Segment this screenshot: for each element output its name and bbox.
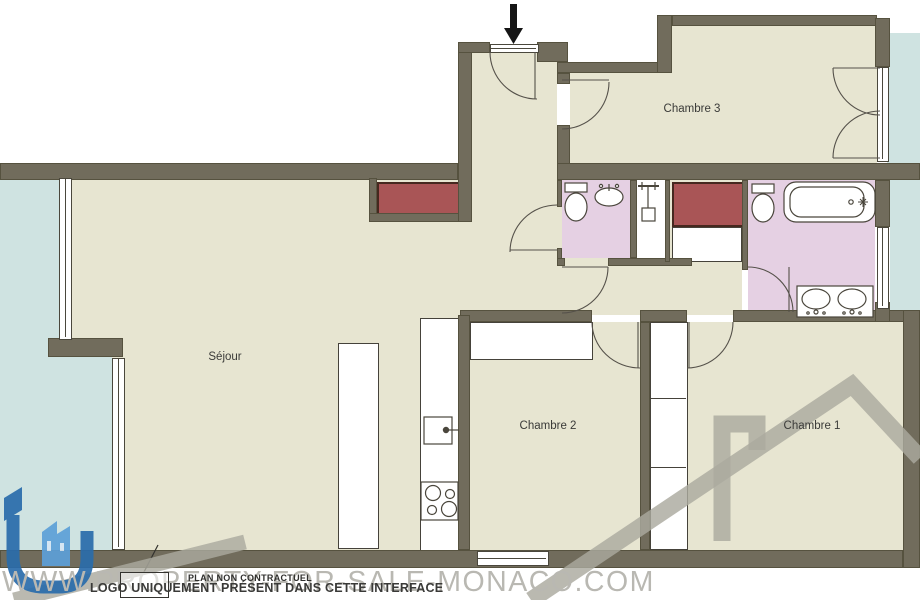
id-logo-icon [0,0,920,600]
room-label-sejour: Séjour [208,351,241,363]
floor-plan: Séjour Chambre 3 Chambre 2 Chambre 1 WWW… [0,0,920,600]
room-label-chambre1: Chambre 1 [784,420,841,432]
logo-note-text: LOGO UNIQUEMENT PRÉSENT DANS CETTE INTER… [90,581,443,595]
room-label-chambre3: Chambre 3 [664,103,721,115]
room-label-chambre2: Chambre 2 [520,420,577,432]
